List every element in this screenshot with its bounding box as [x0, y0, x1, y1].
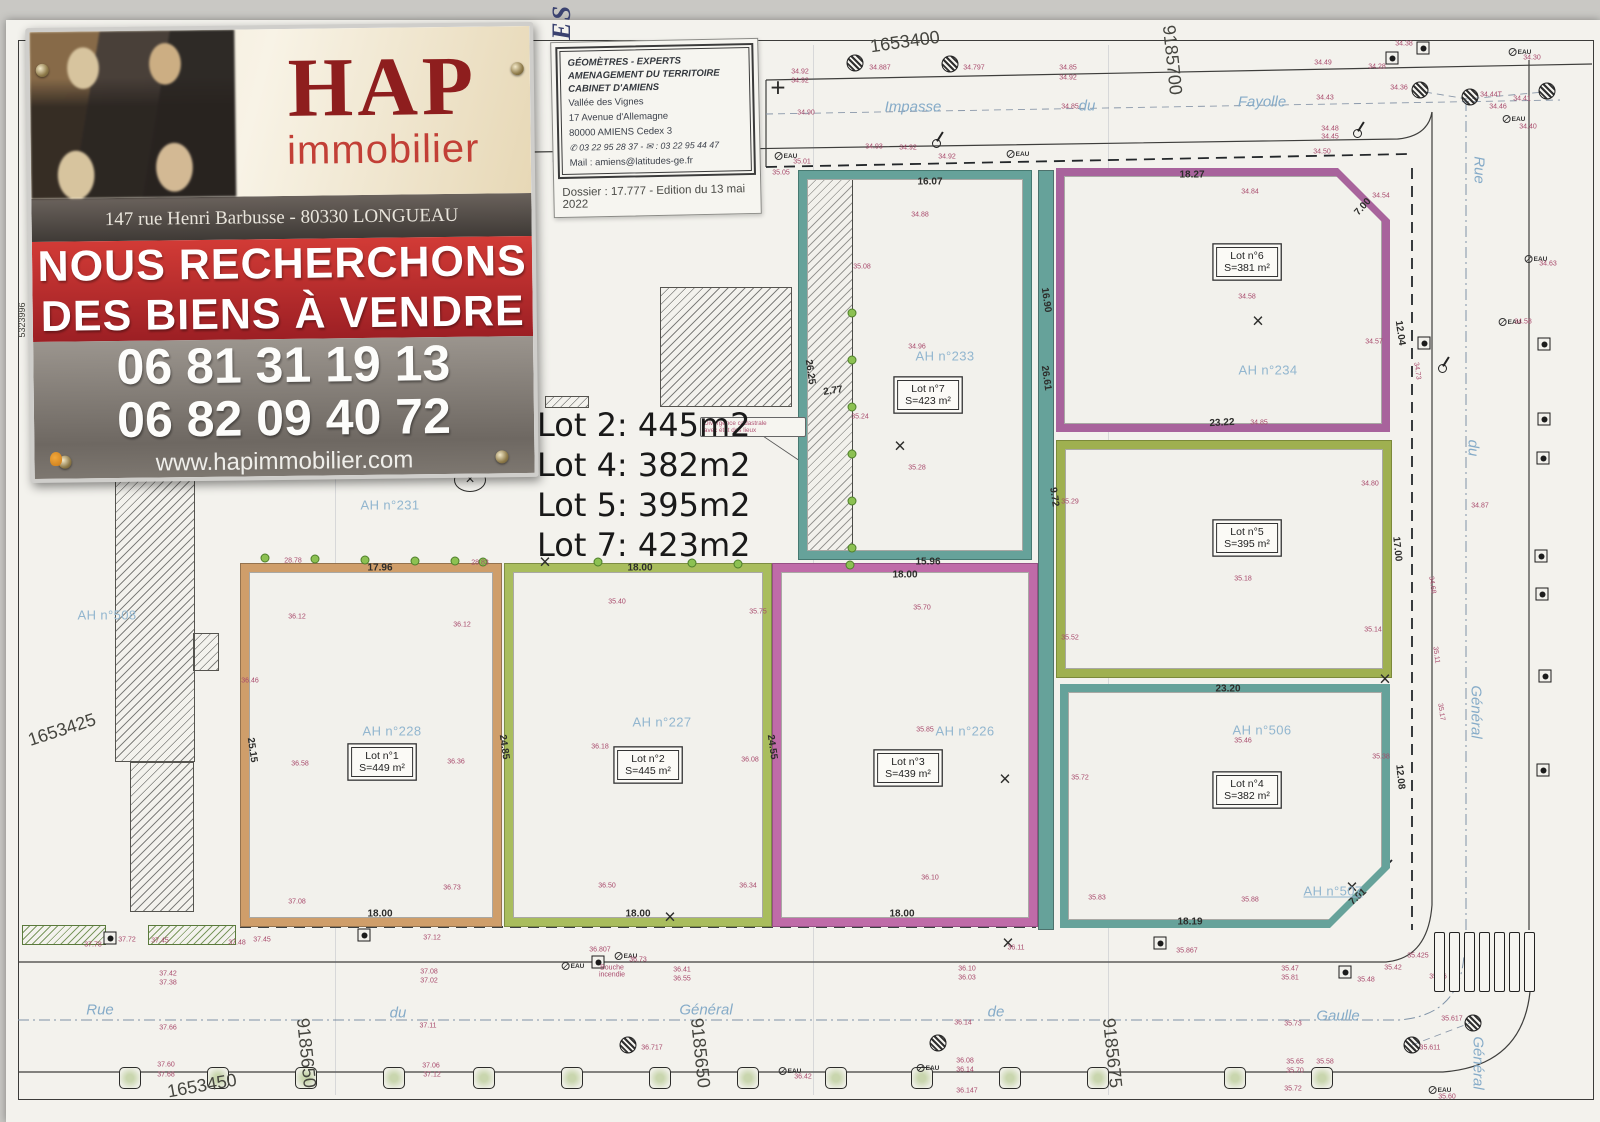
elevation-label: 36.73: [629, 957, 647, 964]
lot-surface-note-line: Lot 2: 445m2: [537, 405, 750, 445]
building-hatch: [193, 633, 219, 671]
elevation-label: 34.30: [1523, 55, 1541, 62]
parcel-id-label: AH n°507: [1304, 884, 1363, 899]
boundary-dot-icon: [261, 554, 270, 563]
lot-2-number: Lot n°2: [625, 753, 671, 765]
elevation-label: 36.14: [954, 1020, 972, 1027]
elevation-label: 35.867: [1176, 948, 1197, 955]
scanned-plan-photo: Lot n°1 S=449 m² Lot n°2 S=445 m² Lot n°…: [0, 0, 1600, 1122]
street-lamp-icon: [1438, 358, 1448, 372]
elevation-label: 35.08: [853, 264, 871, 271]
elevation-label: incendie: [599, 972, 625, 979]
elevation-label: 35.72: [1284, 1086, 1302, 1093]
elevation-label: 35.38: [1372, 754, 1390, 761]
survey-benchmark-icon: [942, 56, 959, 73]
elevation-label: 37.06: [422, 1063, 440, 1070]
lot-4-number: Lot n°4: [1224, 778, 1270, 790]
lot-7-area: [807, 179, 1023, 551]
elevation-label: 34.88: [911, 212, 929, 219]
utility-box-icon: [1154, 937, 1167, 950]
tree-icon: [561, 1067, 583, 1089]
agency-address: 147 rue Henri Barbusse - 80330 LONGUEAU: [105, 204, 459, 230]
tree-icon: [737, 1067, 759, 1089]
utility-box-icon: [1538, 338, 1551, 351]
elevation-label: 35.70: [913, 605, 931, 612]
utility-box-icon: [1339, 966, 1352, 979]
slogan-line-1: NOUS RECHERCHONS: [37, 236, 527, 292]
elevation-label: 34.92: [791, 78, 809, 85]
street-name-label: Rue: [1471, 156, 1488, 184]
elevation-label: 34.84: [1241, 189, 1259, 196]
elevation-label: 34.90: [797, 110, 815, 117]
elevation-label: 36.50: [598, 883, 616, 890]
elevation-label: 34.28: [1368, 64, 1386, 71]
lot-3-area: [781, 572, 1029, 918]
lot-7-easement-hatch: [808, 180, 853, 550]
elevation-label: 35.75: [749, 609, 767, 616]
lot-5-number: Lot n°5: [1224, 526, 1270, 538]
elevation-label: 37.45: [253, 937, 271, 944]
elevation-label: 37.42: [159, 971, 177, 978]
elevation-label: 35.425: [1407, 953, 1428, 960]
boundary-dot-icon: [848, 309, 857, 318]
phone-number-1: 06 81 31 19 13: [116, 337, 450, 394]
screw-icon: [511, 62, 524, 75]
lot-6-parcel: [1056, 168, 1390, 432]
lot-2-area: [513, 572, 763, 918]
tree-icon: [1224, 1067, 1246, 1089]
elevation-label: 34.63: [1539, 261, 1557, 268]
dimension-label: 18.00: [367, 909, 392, 920]
agency-banner: HAP immobilier 147 rue Henri Barbusse - …: [25, 22, 539, 483]
elevation-label: 34.44T: [1480, 92, 1502, 99]
dimension-label: 23.20: [1215, 684, 1240, 695]
elevation-label: 35.24: [851, 414, 869, 421]
utility-box-icon: [1417, 42, 1430, 55]
lot-7-label-box: Lot n°7 S=423 m²: [897, 380, 959, 410]
elevation-label: 36.41: [673, 967, 691, 974]
boundary-dot-icon: [411, 557, 420, 566]
elevation-label: 36.12: [453, 622, 471, 629]
elevation-label: 37.45: [151, 938, 169, 945]
elevation-label: 34.92: [938, 154, 956, 161]
water-valve-icon: EAU: [917, 1064, 940, 1072]
water-valve-icon: EAU: [1503, 115, 1526, 123]
lot-3-number: Lot n°3: [885, 756, 931, 768]
elevation-label: 34.93: [865, 144, 883, 151]
cross-mark-icon: ×: [664, 907, 676, 930]
lot-5-label-box: Lot n°5 S=395 m²: [1216, 523, 1278, 553]
utility-box-icon: [1538, 413, 1551, 426]
elevation-label: 36.46: [241, 678, 259, 685]
street-name-label: Impasse: [885, 99, 942, 116]
elevation-label: 34.57: [1365, 339, 1383, 346]
elevation-label: 36.03: [958, 975, 976, 982]
dimension-label: 18.00: [625, 909, 650, 920]
agents-photo: [29, 30, 236, 200]
elevation-label: 34.887: [869, 65, 890, 72]
lot-3-surface: S=439 m²: [885, 768, 931, 780]
tree-icon: [119, 1067, 141, 1089]
elevation-label: 34.58: [1238, 294, 1256, 301]
elevation-label: 35.72: [1071, 775, 1089, 782]
boundary-dot-icon: [848, 497, 857, 506]
street-name-label: du: [1465, 440, 1482, 457]
survey-benchmark-icon: [930, 1035, 947, 1052]
lot-4-label-box: Lot n°4 S=382 m²: [1216, 775, 1278, 805]
lot-1-number: Lot n°1: [359, 750, 405, 762]
tree-icon: [383, 1067, 405, 1089]
dimension-label: 18.27: [1179, 170, 1204, 181]
survey-benchmark-icon: [1412, 82, 1429, 99]
parcel-id-label: AH n°228: [363, 724, 422, 739]
tree-icon: [649, 1067, 671, 1089]
utility-box-icon: [1537, 452, 1550, 465]
tree-icon: [1311, 1067, 1333, 1089]
parcel-id-label: AH n°226: [936, 724, 995, 739]
lot-6-number: Lot n°6: [1224, 250, 1270, 262]
elevation-label: 35.58: [1316, 1059, 1334, 1066]
elevation-label: 34.43: [1316, 95, 1334, 102]
elevation-label: 37.08: [420, 969, 438, 976]
screw-icon: [495, 450, 508, 463]
elevation-label: 34.80: [1361, 481, 1379, 488]
title-block-inner: GÉOMÈTRES - EXPERTS AMENAGEMENT DU TERRI…: [555, 43, 756, 179]
lot-4-surface: S=382 m²: [1224, 790, 1270, 802]
lot-5-surface: S=395 m²: [1224, 538, 1270, 550]
elevation-label: 34.92: [791, 69, 809, 76]
elevation-label: 36.147: [956, 1088, 977, 1095]
lot-1-surface: S=449 m²: [359, 762, 405, 774]
water-valve-icon: EAU: [562, 962, 585, 970]
dimension-label: 15.96: [915, 557, 940, 568]
elevation-label: 34.40: [1519, 124, 1537, 131]
elevation-label: 37.48: [228, 940, 246, 947]
lot-1-parcel: [240, 563, 502, 927]
elevation-label: 35.88: [1241, 897, 1259, 904]
elevation-label: 37.38: [159, 980, 177, 987]
elevation-label: 37.11: [420, 1023, 437, 1030]
dimension-label: 16.07: [917, 177, 942, 188]
tree-icon: [825, 1067, 847, 1089]
dimension-label: 17.96: [367, 563, 392, 574]
parcel-id-label: AH n°508: [78, 608, 137, 623]
utility-box-icon: [1536, 588, 1549, 601]
elevation-label: 36.807: [589, 947, 610, 954]
street-lamp-icon: [932, 133, 942, 147]
street-name-label: Rue: [86, 1002, 114, 1019]
parcel-id-label: AH n°231: [361, 498, 420, 513]
elevation-label: 36.14: [956, 1067, 974, 1074]
elevation-label: 37.68: [157, 1072, 175, 1079]
boundary-dot-icon: [846, 561, 855, 570]
lot-surface-note-line: Lot 7: 423m2: [537, 525, 750, 565]
elevation-label: 37.60: [157, 1062, 175, 1069]
agency-brand: HAP: [287, 49, 477, 127]
elevation-label: 36.18: [591, 744, 609, 751]
elevation-label: 37.12: [423, 935, 441, 942]
lot-7-surface: S=423 m²: [905, 395, 951, 407]
survey-benchmark-icon: [1465, 1015, 1482, 1032]
grid-cross-icon: +: [770, 73, 785, 104]
street-name-label: du: [1079, 98, 1096, 115]
dimension-label: 23.22: [1209, 417, 1235, 429]
lot-3-parcel: [772, 563, 1038, 927]
dimension-label: 18.19: [1177, 917, 1202, 928]
agency-brand-sub: immobilier: [287, 127, 480, 174]
boundary-dot-icon: [848, 356, 857, 365]
cross-mark-icon: ×: [1379, 669, 1391, 692]
elevation-label: 34.49: [1314, 60, 1332, 67]
street-name-label: Gaulle: [1316, 1008, 1359, 1025]
elevation-label: 36.42: [794, 1074, 812, 1081]
utility-box-icon: [1537, 764, 1550, 777]
boundary-dot-icon: [848, 403, 857, 412]
elevation-label: 37.12: [423, 1072, 441, 1079]
elevation-label: 36.08: [956, 1058, 974, 1065]
elevation-label: 35.81: [1281, 975, 1299, 982]
elevation-label: Bouche: [600, 965, 624, 972]
elevation-label: 35.85: [916, 727, 934, 734]
elevation-label: 37.08: [288, 899, 306, 906]
cross-mark-icon: ×: [894, 436, 906, 459]
elevation-label: 34.85: [1059, 65, 1077, 72]
elevation-label: 34.45: [1321, 134, 1339, 141]
elevation-label: 35.05: [772, 170, 790, 177]
elevation-label: 36.10: [921, 875, 939, 882]
elevation-label: 34.46: [1489, 104, 1507, 111]
boundary-dot-icon: [848, 450, 857, 459]
elevation-label: 35.52: [1061, 635, 1079, 642]
street-name-label: Général: [1470, 1036, 1487, 1089]
elevation-label: 36.55: [673, 976, 691, 983]
elevation-label: 34.41: [1513, 96, 1531, 103]
elevation-label: 34.85: [1250, 420, 1268, 427]
lot-2-surface: S=445 m²: [625, 765, 671, 777]
elevation-label: 34.38: [1395, 41, 1413, 48]
street-name-label: Général: [1468, 685, 1485, 738]
lot-2-label-box: Lot n°2 S=445 m²: [617, 750, 679, 780]
survey-benchmark-icon: [847, 55, 864, 72]
parcel-id-label: AH n°233: [916, 349, 975, 364]
parcel-id-label: AH n°234: [1239, 363, 1298, 378]
elevation-label: 34.92: [899, 145, 917, 152]
elevation-label: 35.14: [1364, 627, 1382, 634]
lot-7-parcel: [798, 170, 1032, 560]
elevation-label: 34.92: [1059, 75, 1077, 82]
elevation-label: 37.02: [420, 978, 438, 985]
dimension-label: 18.00: [892, 570, 917, 581]
lot-2-parcel: [504, 563, 772, 927]
elevation-label: 35.18: [1234, 576, 1252, 583]
building-hatch: [660, 287, 792, 407]
elevation-label: 35.60: [1438, 1094, 1456, 1101]
lot-3-label-box: Lot n°3 S=439 m²: [877, 753, 939, 783]
surveyor-mail: Mail : amiens@latitudes-ge.fr: [570, 152, 748, 171]
tree-icon: [999, 1067, 1021, 1089]
survey-benchmark-icon: [1462, 89, 1479, 106]
lot-7-number: Lot n°7: [905, 383, 951, 395]
utility-box-icon: [1535, 550, 1548, 563]
elevation-label: 28.83: [471, 560, 489, 567]
elevation-label: 35.83: [1088, 895, 1106, 902]
agency-logo: HAP immobilier: [234, 26, 531, 197]
banner-slogan-band: NOUS RECHERCHONS DES BIENS À VENDRE: [32, 236, 533, 342]
lot-5-area: [1065, 449, 1383, 669]
elevation-label: 28.78: [284, 558, 302, 565]
elevation-label: 35.47: [1281, 966, 1299, 973]
lot-surface-notes: Lot 2: 445m2Lot 4: 382m2Lot 5: 395m2Lot …: [537, 405, 750, 565]
elevation-label: 36.08: [741, 757, 759, 764]
street-lamp-icon: [1353, 123, 1363, 137]
elevation-label: 35.42: [1384, 965, 1402, 972]
elevation-label: 35.29: [1061, 499, 1079, 506]
elevation-label: 36.11: [1008, 945, 1025, 952]
screw-icon: [36, 64, 49, 77]
phone-number-2: 06 82 09 40 72: [117, 390, 451, 447]
elevation-label: 34.36: [1390, 85, 1408, 92]
lot-6-surface: S=381 m²: [1224, 262, 1270, 274]
elevation-label: 35.70: [1286, 1068, 1304, 1075]
utility-box-icon: [1418, 337, 1431, 350]
elevation-label: 35.48: [1357, 977, 1375, 984]
agency-address-band: 147 rue Henri Barbusse - 80330 LONGUEAU: [31, 193, 531, 242]
elevation-label: 35.65: [1286, 1059, 1304, 1066]
elevation-label: 37.72: [118, 937, 136, 944]
street-name-label: Général: [679, 1002, 732, 1019]
street-name-label: de: [988, 1004, 1005, 1021]
lot-surface-note-line: Lot 4: 382m2: [537, 445, 750, 485]
parcel-divider-strip: [1038, 170, 1054, 930]
elevation-label: 35.617: [1441, 1016, 1462, 1023]
elevation-label: 34.87: [1471, 503, 1489, 510]
elevation-label: 35.73: [1284, 1021, 1302, 1028]
cross-mark-icon: ×: [999, 769, 1011, 792]
elevation-label: 35.40: [608, 599, 626, 606]
elevation-label: 36.717: [641, 1045, 662, 1052]
elevation-label: 37.78: [84, 942, 102, 949]
elevation-label: 35.28: [908, 465, 926, 472]
elevation-label: 34.50: [1313, 149, 1331, 156]
agency-website: www.hapimmobilier.com: [156, 446, 414, 477]
elevation-label: 35.01: [793, 159, 811, 166]
elevation-label: 34.48: [1321, 126, 1339, 133]
elevation-label: 36.73: [443, 885, 461, 892]
lot-6-label-box: Lot n°6 S=381 m²: [1216, 247, 1278, 277]
dimension-label: 18.00: [889, 909, 914, 920]
slogan-line-2: DES BIENS À VENDRE: [40, 286, 525, 342]
building-hatch: [130, 762, 194, 912]
elevation-label: 36.10: [958, 966, 976, 973]
elevation-label: 35.46: [1234, 738, 1252, 745]
elevation-label: 36.58: [291, 761, 309, 768]
utility-box-icon: [1539, 670, 1552, 683]
tree-icon: [473, 1067, 495, 1089]
banner-header: HAP immobilier: [29, 26, 531, 199]
banner-contact-band: 06 81 31 19 13 06 82 09 40 72 www.hapimm…: [33, 336, 535, 479]
elevation-label: 34.797: [963, 65, 984, 72]
lot-surface-note-line: Lot 5: 395m2: [537, 485, 750, 525]
elevation-label: 36.12: [288, 614, 306, 621]
dossier-reference: Dossier : 17.777 - Edition du 13 mai 202…: [562, 183, 756, 211]
survey-benchmark-icon: [1404, 1037, 1421, 1054]
survey-benchmark-icon: [620, 1037, 637, 1054]
elevation-label: 34.85: [1061, 104, 1079, 111]
elevation-label: 37.66: [159, 1025, 177, 1032]
water-valve-icon: EAU: [1007, 150, 1030, 158]
elevation-label: 34.54: [1372, 193, 1390, 200]
boundary-dot-icon: [451, 557, 460, 566]
elevation-label: 36.36: [447, 759, 465, 766]
parcel-id-label: AH n°227: [633, 715, 692, 730]
boundary-dot-icon: [311, 555, 320, 564]
elevation-label: 34.58: [1514, 319, 1532, 326]
elevation-label: 36.34: [739, 883, 757, 890]
utility-box-icon: [1386, 52, 1399, 65]
survey-benchmark-icon: [1539, 83, 1556, 100]
street-name-label: Fayolle: [1238, 94, 1286, 111]
pedestrian-crossing: [1434, 932, 1536, 990]
parcel-id-label: AH n°506: [1233, 723, 1292, 738]
utility-box-icon: [104, 932, 117, 945]
cable-icon: [50, 452, 62, 466]
street-name-label: du: [390, 1005, 407, 1022]
elevation-label: 35.611: [1420, 1045, 1441, 1052]
lot-5-parcel: [1056, 440, 1392, 678]
boundary-dot-icon: [848, 544, 857, 553]
lot-1-label-box: Lot n°1 S=449 m²: [351, 747, 413, 777]
lot-6-area: [1064, 176, 1382, 424]
grid-coordinate-label: 5323996: [17, 302, 27, 337]
utility-box-icon: [358, 929, 371, 942]
cross-mark-icon: ×: [1252, 311, 1264, 334]
title-block: GÉOMÈTRES - EXPERTS AMENAGEMENT DU TERRI…: [550, 38, 762, 218]
